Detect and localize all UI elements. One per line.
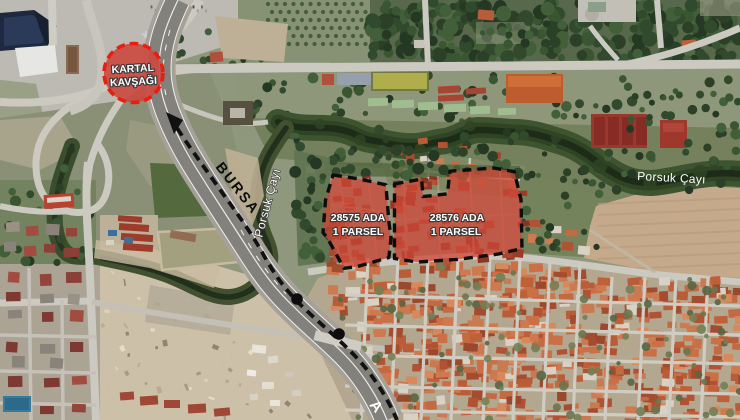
svg-text:28575 ADA: 28575 ADA <box>331 212 386 224</box>
svg-text:KAVŞAĞI: KAVŞAĞI <box>110 74 158 89</box>
svg-text:1 PARSEL: 1 PARSEL <box>333 226 384 238</box>
svg-text:1 PARSEL: 1 PARSEL <box>431 226 482 238</box>
svg-text:KARTAL: KARTAL <box>111 62 155 76</box>
svg-text:28576 ADA: 28576 ADA <box>430 212 485 224</box>
